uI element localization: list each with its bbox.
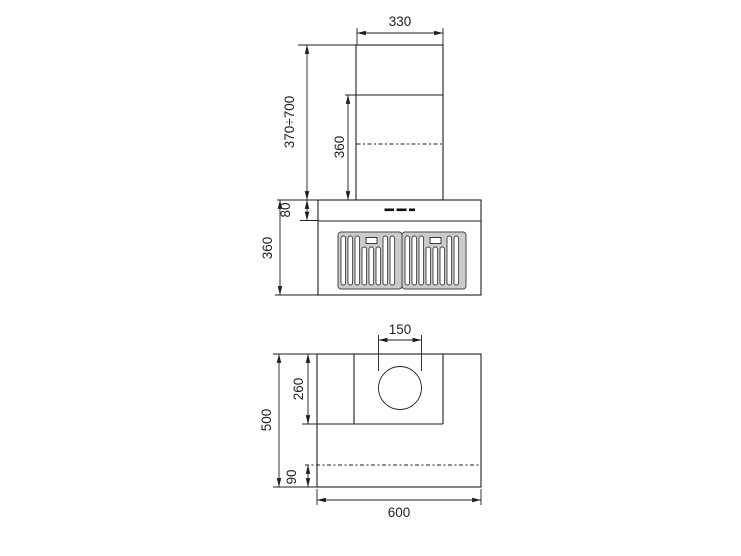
hood-dimension-drawing: 330 370÷700 360 80 xyxy=(0,0,741,556)
filter-handle-left xyxy=(366,238,377,244)
dim-control-band-height: 80 xyxy=(278,200,318,221)
dim-body-width: 600 xyxy=(317,489,481,520)
chimney-outline xyxy=(356,45,443,200)
filter-panel-left xyxy=(338,232,402,289)
technical-drawing-canvas: 330 370÷700 360 80 xyxy=(0,0,741,556)
control-buttons xyxy=(385,209,416,212)
filter-panel-right xyxy=(402,232,466,289)
dim-label-body-height: 360 xyxy=(260,237,275,260)
filter-handle-right xyxy=(430,238,441,244)
dim-label-duct-box-depth: 260 xyxy=(291,378,306,401)
dim-label-rear-section-depth: 90 xyxy=(284,469,299,484)
front-view: 330 370÷700 360 80 xyxy=(260,14,481,295)
dim-label-lower-chimney-height: 360 xyxy=(332,136,347,159)
dim-mounting-height-range: 370÷700 xyxy=(277,45,356,200)
dim-label-body-width: 600 xyxy=(388,505,411,520)
dim-lower-chimney-height: 360 xyxy=(332,95,348,200)
dim-label-chimney-width: 330 xyxy=(389,14,412,29)
dim-label-total-depth: 500 xyxy=(259,409,274,432)
hood-footprint-outline xyxy=(317,354,481,487)
dim-chimney-width: 330 xyxy=(357,14,443,45)
dim-label-duct-diameter: 150 xyxy=(389,322,412,337)
dim-label-mounting-height-range: 370÷700 xyxy=(282,96,297,148)
dim-duct-box-depth: 260 xyxy=(291,354,308,424)
dim-rear-section-depth: 90 xyxy=(284,465,308,487)
plan-view: 150 260 500 90 xyxy=(259,322,481,520)
